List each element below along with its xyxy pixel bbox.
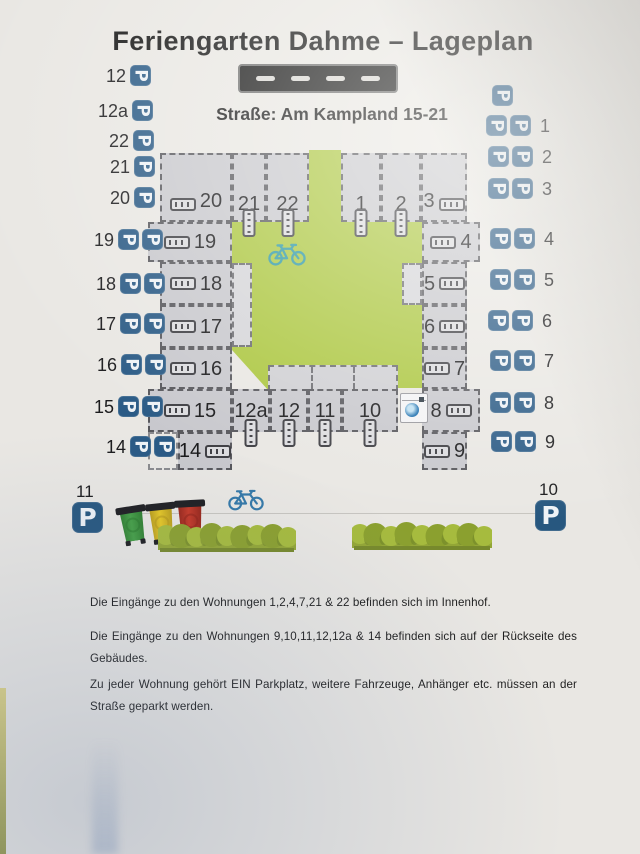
- parking-row-17: 17PP: [120, 313, 165, 334]
- unit-2: 2: [381, 153, 421, 222]
- entrance-door-icon: [205, 445, 231, 458]
- unit-22: 22: [266, 153, 309, 222]
- parking-row-label: 21: [110, 158, 130, 176]
- unit-12a: 12a: [232, 389, 270, 432]
- parking-icon: P: [490, 228, 511, 249]
- unit-8: 8: [422, 389, 480, 432]
- parking-row-2: PP2: [488, 146, 552, 167]
- unit-1: 1: [341, 153, 381, 222]
- parking-row-label: 1: [540, 117, 550, 135]
- entrance-door-icon: [439, 320, 465, 333]
- entrance-door-icon: [170, 320, 196, 333]
- unit-label: 10: [359, 401, 381, 421]
- parking-row-label: 12: [106, 67, 126, 85]
- entrance-door-icon: [170, 362, 196, 375]
- entrance-door-icon: [170, 198, 196, 211]
- unit-label: 12: [278, 401, 300, 421]
- parking-icon: P: [121, 354, 142, 375]
- parking-icon: P: [488, 146, 509, 167]
- street-parking-right: 10 P: [535, 481, 566, 531]
- parking-icon: P: [490, 269, 511, 290]
- parking-icon: P: [514, 228, 535, 249]
- parking-icon: P: [535, 500, 566, 531]
- parking-letter: P: [122, 277, 139, 289]
- washing-machine-icon: [400, 393, 428, 423]
- unit-label: 19: [194, 232, 216, 252]
- parking-letter: P: [492, 273, 509, 285]
- unit-label: 14: [179, 441, 201, 461]
- unit-18: 18: [160, 262, 232, 305]
- parking-letter: P: [517, 435, 534, 447]
- parking-row-8: PP8: [490, 392, 554, 413]
- parking-icon: P: [118, 229, 139, 250]
- road-icon: [238, 64, 398, 93]
- parking-icon: P: [145, 354, 166, 375]
- parking-icon: P: [154, 436, 175, 457]
- bicycle-icon: [228, 487, 264, 511]
- note-innenhof: Die Eingänge zu den Wohnungen 1,2,4,7,21…: [90, 592, 577, 614]
- parking-letter: P: [512, 119, 529, 131]
- parking-icon: P: [132, 100, 153, 121]
- courtyard-path: [309, 150, 341, 224]
- unit-3: 3: [421, 153, 467, 222]
- parking-letter: P: [132, 440, 149, 452]
- unit-10: 10: [342, 389, 398, 432]
- strip-cell: [313, 367, 356, 389]
- courtyard-notch-left: [232, 263, 252, 347]
- bin-wheel: [140, 538, 146, 544]
- parking-icon: P: [486, 115, 507, 136]
- entrance-door-icon: [319, 419, 332, 447]
- parking-icon: P: [130, 65, 151, 86]
- strip-cell: [270, 367, 313, 389]
- parking-letter: P: [516, 232, 533, 244]
- unit-label: 6: [424, 317, 435, 337]
- entrance-door-icon: [430, 236, 456, 249]
- parking-letter: P: [494, 89, 511, 101]
- parking-row-20: 20P: [134, 187, 155, 208]
- backside-strip: [268, 365, 398, 391]
- green-bin: [117, 504, 149, 547]
- parking-letter: P: [136, 160, 153, 172]
- unit-4: 4: [422, 222, 480, 262]
- lane-dash: [291, 76, 310, 81]
- parking-letter: P: [122, 317, 139, 329]
- parking-icon: P: [130, 436, 151, 457]
- parking-letter: P: [488, 119, 505, 131]
- parking-icon: P: [142, 229, 163, 250]
- parking-row-7: PP7: [490, 350, 554, 371]
- parking-letter: P: [134, 104, 151, 116]
- parking-icon: P: [72, 502, 103, 533]
- unit-21: 21: [232, 153, 266, 222]
- parking-letter: P: [514, 314, 531, 326]
- entrance-door-icon: [424, 362, 450, 375]
- parking-icon: P: [490, 350, 511, 371]
- lane-dash: [256, 76, 275, 81]
- parking-icon: P: [120, 273, 141, 294]
- parking-letter: P: [135, 134, 152, 146]
- parking-letter: P: [516, 273, 533, 285]
- unit-12: 12: [270, 389, 308, 432]
- bicycle-icon: [268, 241, 306, 266]
- parking-letter: P: [156, 440, 173, 452]
- parking-row-9: PP9: [491, 431, 555, 452]
- parking-row-22: 22P: [133, 130, 154, 151]
- parking-letter: P: [132, 69, 149, 81]
- parking-row-label: 15: [94, 398, 114, 416]
- parking-icon: P: [134, 156, 155, 177]
- parking-letter: P: [493, 435, 510, 447]
- parking-row-label: 16: [97, 356, 117, 374]
- unit-16: 16: [160, 348, 232, 389]
- parking-row-label: 8: [544, 394, 554, 412]
- parking-icon: P: [142, 396, 163, 417]
- parking-letter: P: [490, 182, 507, 194]
- parking-row-21: 21P: [134, 156, 155, 177]
- hedge-icon: [352, 522, 492, 551]
- hedge-icon: [158, 523, 296, 553]
- parking-letter: P: [490, 150, 507, 162]
- parking-icon: P: [120, 313, 141, 334]
- entrance-door-icon: [424, 445, 450, 458]
- parking-icon: P: [134, 187, 155, 208]
- courtyard-notch-right: [402, 263, 422, 305]
- parking-icon: P: [488, 310, 509, 331]
- entrance-door-icon: [164, 404, 190, 417]
- entrance-door-icon: [245, 419, 258, 447]
- unit-14: 14: [178, 432, 232, 470]
- unit-label: 20: [200, 191, 222, 211]
- parking-letter: P: [146, 277, 163, 289]
- unit-label: 15: [194, 401, 216, 421]
- photo-streak: [92, 740, 118, 854]
- unit-label: 17: [200, 317, 222, 337]
- parking-letter: P: [492, 354, 509, 366]
- table-edge: [0, 688, 6, 854]
- parking-row-14: 14PP: [130, 436, 175, 457]
- entrance-door-icon: [170, 277, 196, 290]
- note-parkplatz: Zu jeder Wohnung gehört EIN Parkplatz, w…: [90, 674, 577, 718]
- unit-7: 7: [422, 348, 467, 389]
- parking-letter: P: [123, 358, 140, 370]
- street-parking-left-label: 11: [72, 483, 103, 500]
- photographed-site-plan-page: Feriengarten Dahme – Lageplan Straße: Am…: [0, 0, 640, 854]
- note-rueckseite: Die Eingänge zu den Wohnungen 9,10,11,12…: [90, 626, 577, 670]
- parking-row-label: 14: [106, 438, 126, 456]
- parking-letter: P: [136, 191, 153, 203]
- entrance-door-icon: [355, 209, 368, 237]
- unit-5: 5: [422, 262, 467, 305]
- parking-letter: P: [514, 182, 531, 194]
- unit-label: 8: [430, 401, 441, 421]
- entrance-door-icon: [395, 209, 408, 237]
- unit-label: 12a: [234, 401, 267, 421]
- parking-icon: P: [488, 178, 509, 199]
- parking-icon: P: [510, 115, 531, 136]
- parking-row-16: 16PP: [121, 354, 166, 375]
- parking-icon: P: [512, 178, 533, 199]
- unit-9: 9: [422, 432, 467, 470]
- unit-label: 18: [200, 274, 222, 294]
- parking-row-label: 3: [542, 180, 552, 198]
- parking-row-4: PP4: [490, 228, 554, 249]
- parking-letter: P: [147, 358, 164, 370]
- parking-icon: P: [144, 313, 165, 334]
- parking-letter: P: [516, 396, 533, 408]
- entrance-door-icon: [283, 419, 296, 447]
- unit-label: 16: [200, 359, 222, 379]
- bin-wheel: [125, 541, 131, 547]
- parking-row-label: 22: [109, 132, 129, 150]
- parking-row-label: 20: [110, 189, 130, 207]
- unit-label: 4: [460, 232, 471, 252]
- parking-row-label: 7: [544, 352, 554, 370]
- parking-row-15: 15PP: [118, 396, 163, 417]
- parking-letter: P: [492, 396, 509, 408]
- unit-label: 3: [423, 191, 434, 211]
- unit-label: 11: [315, 401, 336, 421]
- parking-icon: P: [490, 392, 511, 413]
- entrance-door-icon: [243, 209, 256, 237]
- parking-icon: P: [512, 310, 533, 331]
- parking-row-label: 5: [544, 271, 554, 289]
- parking-letter: P: [490, 314, 507, 326]
- page-title: Feriengarten Dahme – Lageplan: [0, 26, 640, 57]
- unit-label: 9: [454, 441, 465, 461]
- parking-row-6: PP6: [488, 310, 552, 331]
- unit-label: 5: [424, 274, 435, 294]
- parking-icon: P: [512, 146, 533, 167]
- parking-letter: P: [120, 233, 137, 245]
- parking-icon: P: [492, 85, 513, 106]
- entrance-door-icon: [439, 277, 465, 290]
- parking-icon: P: [514, 269, 535, 290]
- parking-letter: P: [146, 317, 163, 329]
- lane-dash: [326, 76, 345, 81]
- parking-letter: P: [492, 232, 509, 244]
- parking-letter: P: [516, 354, 533, 366]
- parking-row-label: 17: [96, 315, 116, 333]
- parking-row-label: 9: [545, 433, 555, 451]
- parking-row-label: 2: [542, 148, 552, 166]
- unit-20: 20: [160, 153, 232, 222]
- parking-icon: P: [491, 431, 512, 452]
- parking-row-19: 19PP: [118, 229, 163, 250]
- parking-row-5: PP5: [490, 269, 554, 290]
- entrance-door-icon: [439, 198, 465, 211]
- parking-row-1: PP1: [486, 115, 550, 136]
- recycle-mark: [124, 516, 141, 533]
- unit-17: 17: [160, 305, 232, 348]
- parking-letter: P: [514, 150, 531, 162]
- unit-label: 7: [454, 359, 465, 379]
- parking-row-label: 6: [542, 312, 552, 330]
- parking-row-3: PP3: [488, 178, 552, 199]
- parking-letter: P: [144, 233, 161, 245]
- entrance-door-icon: [281, 209, 294, 237]
- parking-icon: P: [514, 392, 535, 413]
- unit-11: 11: [308, 389, 342, 432]
- parking-row-12a: 12aP: [132, 100, 153, 121]
- entrance-door-icon: [364, 419, 377, 447]
- parking-icon: P: [118, 396, 139, 417]
- parking-icon: P: [133, 130, 154, 151]
- parking-icon: P: [514, 350, 535, 371]
- entrance-door-icon: [446, 404, 472, 417]
- parking-row-label: 19: [94, 231, 114, 249]
- entrance-door-icon: [164, 236, 190, 249]
- parking-letter: P: [120, 400, 137, 412]
- parking-row-18: 18PP: [120, 273, 165, 294]
- strip-cell: [355, 367, 396, 389]
- parking-row: P: [492, 85, 522, 106]
- unit-6: 6: [422, 305, 467, 348]
- parking-letter: P: [144, 400, 161, 412]
- lane-dash: [361, 76, 380, 81]
- parking-icon: P: [144, 273, 165, 294]
- street-parking-left: 11 P: [72, 483, 103, 533]
- parking-row-label: 12a: [98, 102, 128, 120]
- parking-row-12: 12P: [130, 65, 151, 86]
- street-parking-right-label: 10: [535, 481, 566, 498]
- parking-icon: P: [515, 431, 536, 452]
- parking-row-label: 18: [96, 275, 116, 293]
- parking-row-label: 4: [544, 230, 554, 248]
